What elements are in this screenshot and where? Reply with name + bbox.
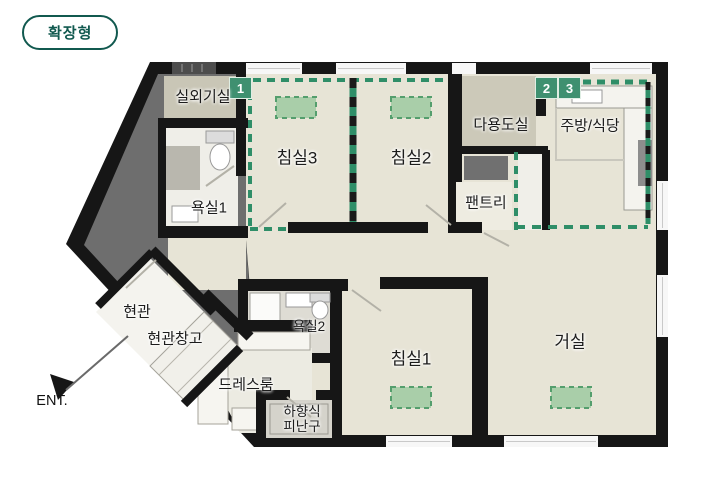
label-evac-line2: 피난구: [283, 420, 320, 435]
expansion-marker-1: 1: [230, 78, 251, 98]
expansion-marker-2: 2: [536, 78, 557, 98]
label-dressroom: 드레스룸: [218, 374, 273, 395]
label-bedroom1: 침실1: [391, 345, 432, 370]
label-utility: 다용도실: [473, 114, 528, 135]
label-bath2: 욕실2: [293, 315, 325, 335]
label-evac-line1: 하향식: [283, 405, 320, 420]
floorplan-page: 확장형 1 2 3 실외기실 침실3 침실2 다용도실 주방/식당 팬트리 욕실…: [0, 0, 712, 489]
label-bath1: 욕실1: [191, 197, 227, 218]
label-pantry: 팬트리: [465, 192, 506, 213]
label-living: 거실: [554, 328, 585, 353]
label-outdoor-unit: 실외기실: [175, 86, 230, 107]
bathroom1-room: [158, 118, 248, 238]
label-bedroom2: 침실2: [391, 144, 432, 169]
floor-plan-canvas: [0, 0, 712, 489]
label-bedroom3: 침실3: [277, 144, 318, 169]
entrance-label: ENT.: [36, 393, 67, 409]
label-evac-hatch: 하향식 피난구: [283, 405, 320, 435]
expansion-marker-3: 3: [559, 78, 580, 98]
plan-type-badge[interactable]: 확장형: [22, 15, 118, 50]
entrance-arrow-icon: [50, 336, 128, 400]
label-kitchen: 주방/식당: [560, 115, 619, 136]
label-entry-storage: 현관창고: [147, 328, 202, 349]
label-entry: 현관: [123, 301, 151, 322]
